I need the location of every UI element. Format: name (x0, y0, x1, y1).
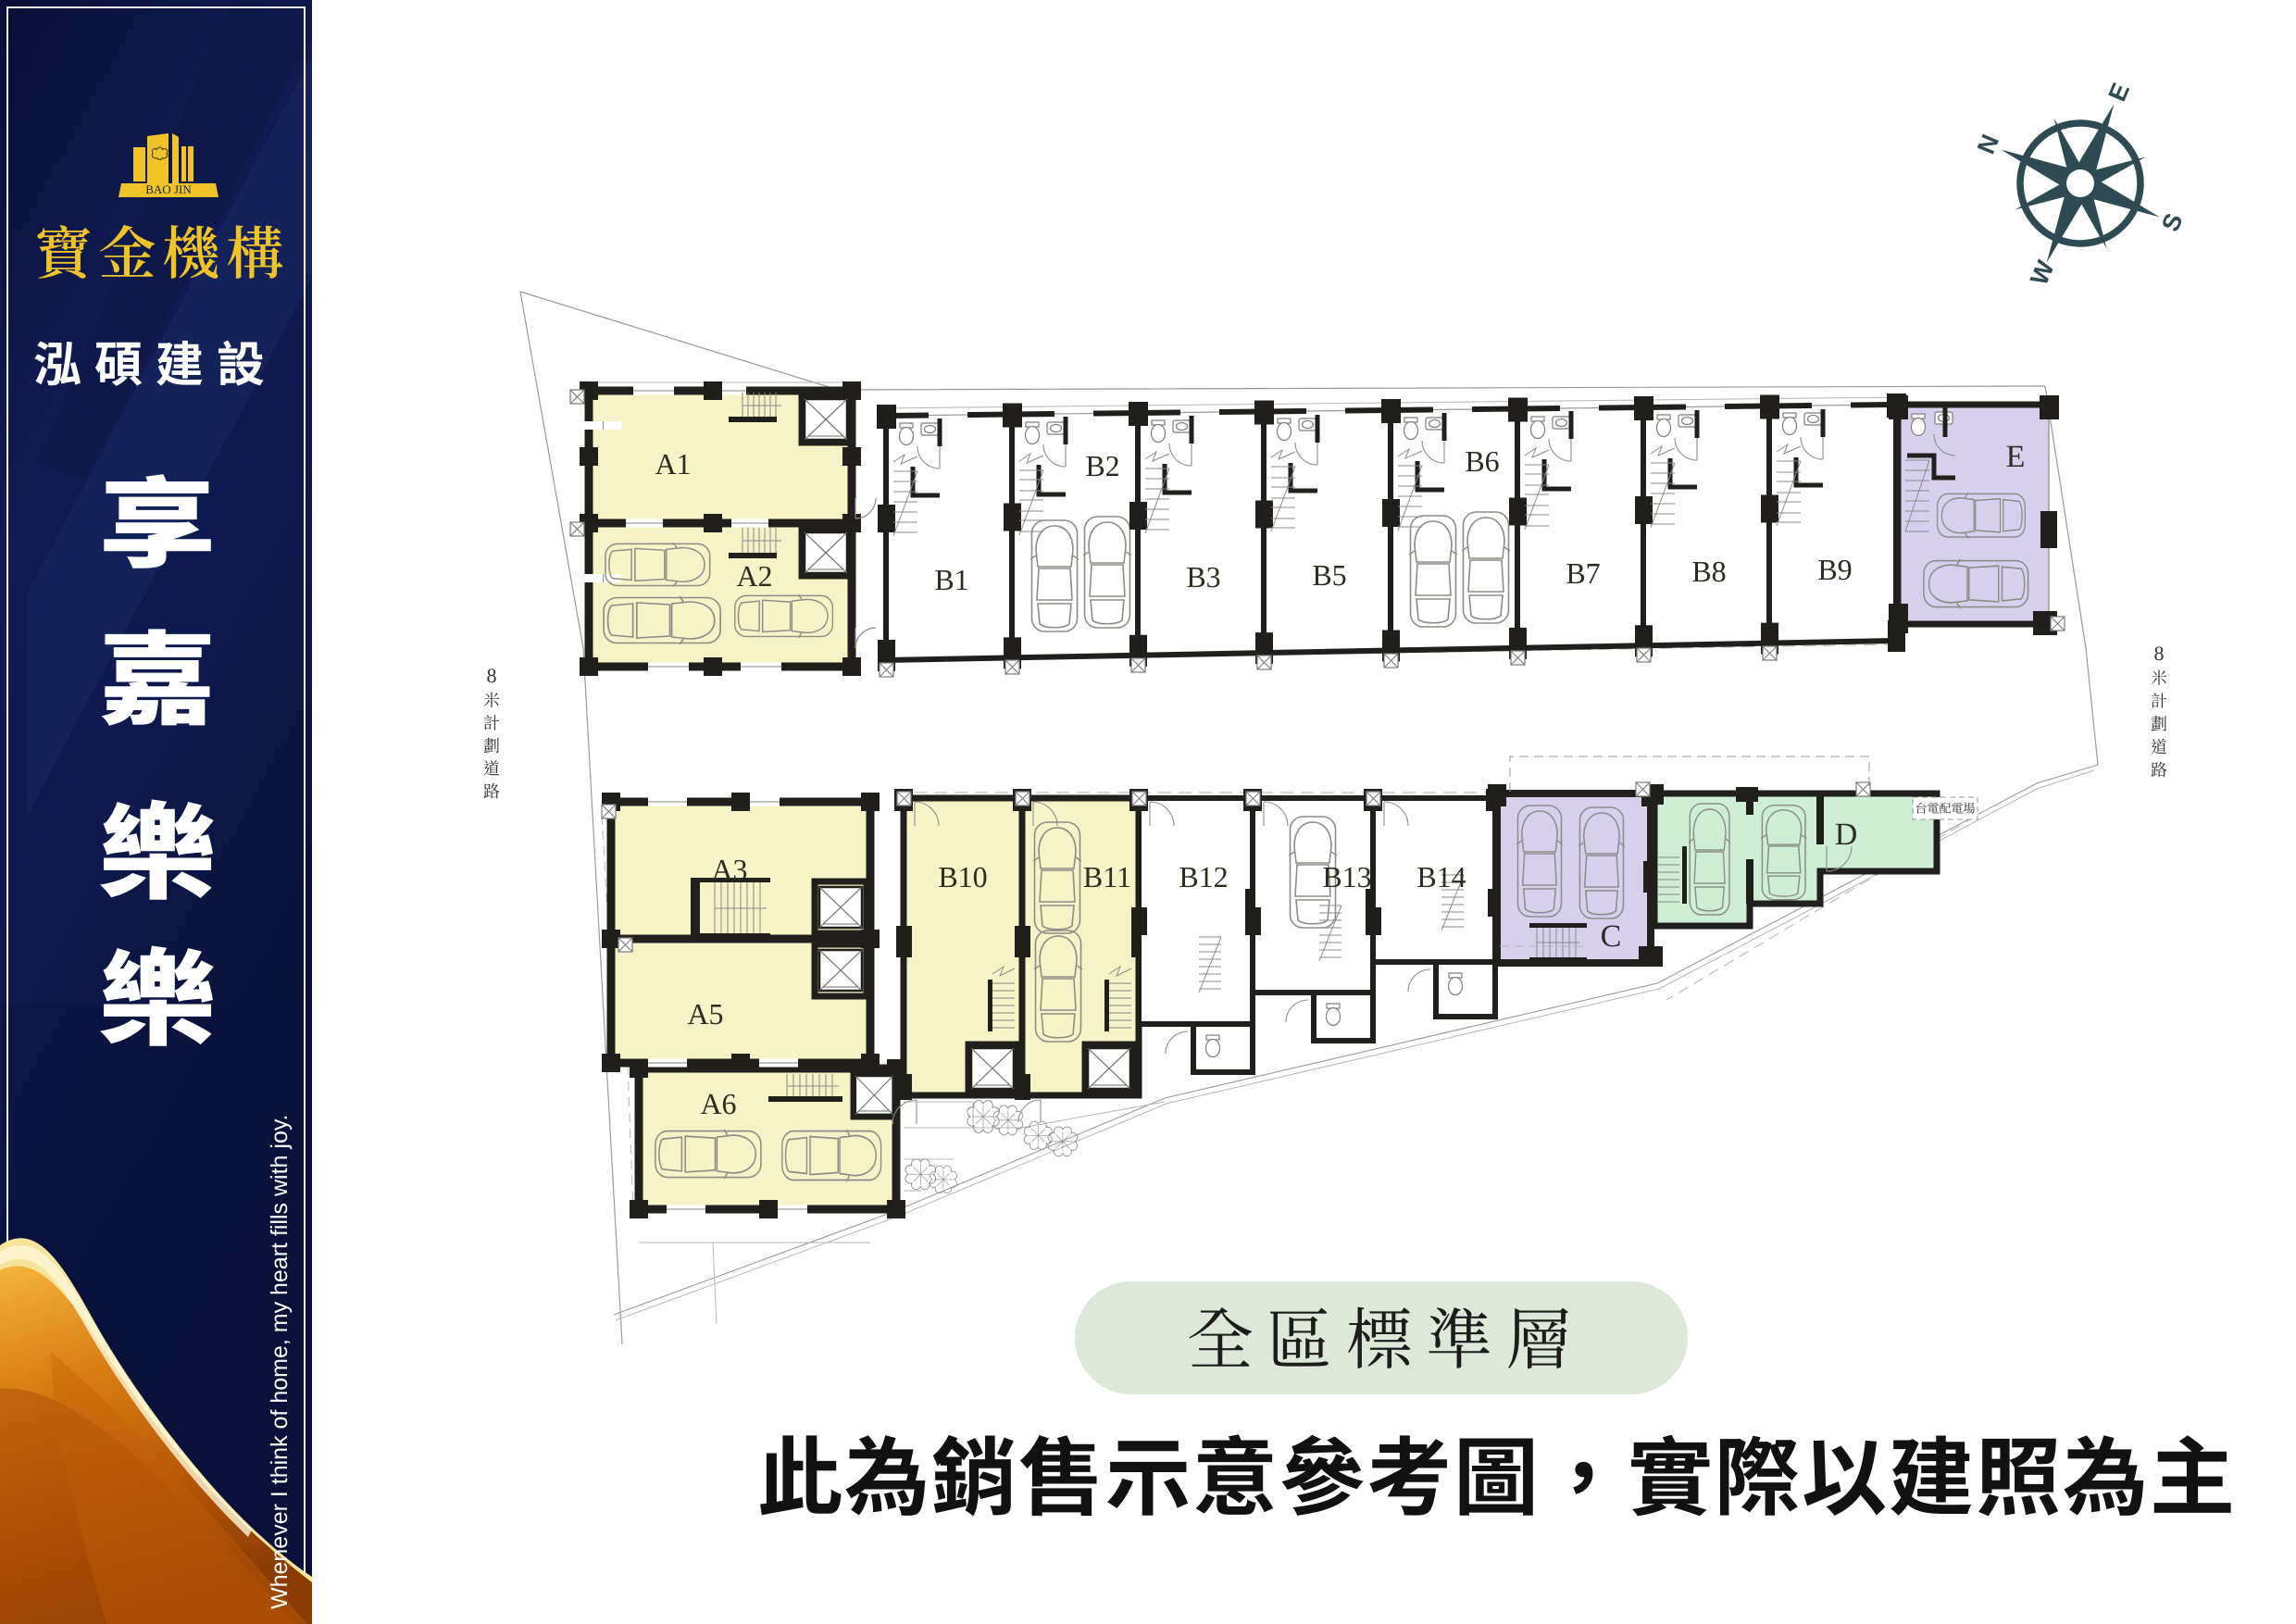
svg-text:B6: B6 (1465, 444, 1499, 478)
svg-text:BAO JIN: BAO JIN (145, 182, 192, 196)
svg-text:Whenever I think of home, my h: Whenever I think of home, my heart fills… (267, 1115, 293, 1609)
svg-text:B13: B13 (1322, 860, 1371, 893)
svg-text:E: E (2006, 440, 2026, 474)
svg-text:B12: B12 (1179, 860, 1228, 893)
svg-text:B10: B10 (938, 860, 987, 893)
svg-text:S: S (2156, 209, 2189, 235)
svg-text:B14: B14 (1416, 860, 1466, 893)
svg-text:8: 8 (487, 664, 497, 687)
svg-text:B8: B8 (1691, 555, 1726, 588)
svg-text:C: C (1601, 919, 1622, 954)
svg-text:W: W (2025, 256, 2060, 290)
svg-text:A3: A3 (711, 853, 747, 886)
svg-text:A6: A6 (700, 1087, 736, 1120)
svg-text:N: N (1972, 131, 2004, 158)
svg-text:B11: B11 (1083, 860, 1131, 893)
svg-text:E: E (2103, 79, 2135, 105)
svg-text:D: D (1835, 818, 1858, 852)
svg-text:A2: A2 (736, 559, 772, 593)
svg-text:8: 8 (2154, 642, 2165, 665)
svg-text:B2: B2 (1085, 449, 1119, 482)
svg-text:A1: A1 (655, 447, 691, 481)
svg-text:B1: B1 (934, 563, 968, 596)
svg-text:B3: B3 (1186, 560, 1220, 593)
svg-text:B9: B9 (1817, 553, 1852, 586)
svg-text:A5: A5 (687, 997, 723, 1031)
svg-text:B5: B5 (1312, 558, 1346, 592)
svg-text:B7: B7 (1566, 556, 1600, 590)
